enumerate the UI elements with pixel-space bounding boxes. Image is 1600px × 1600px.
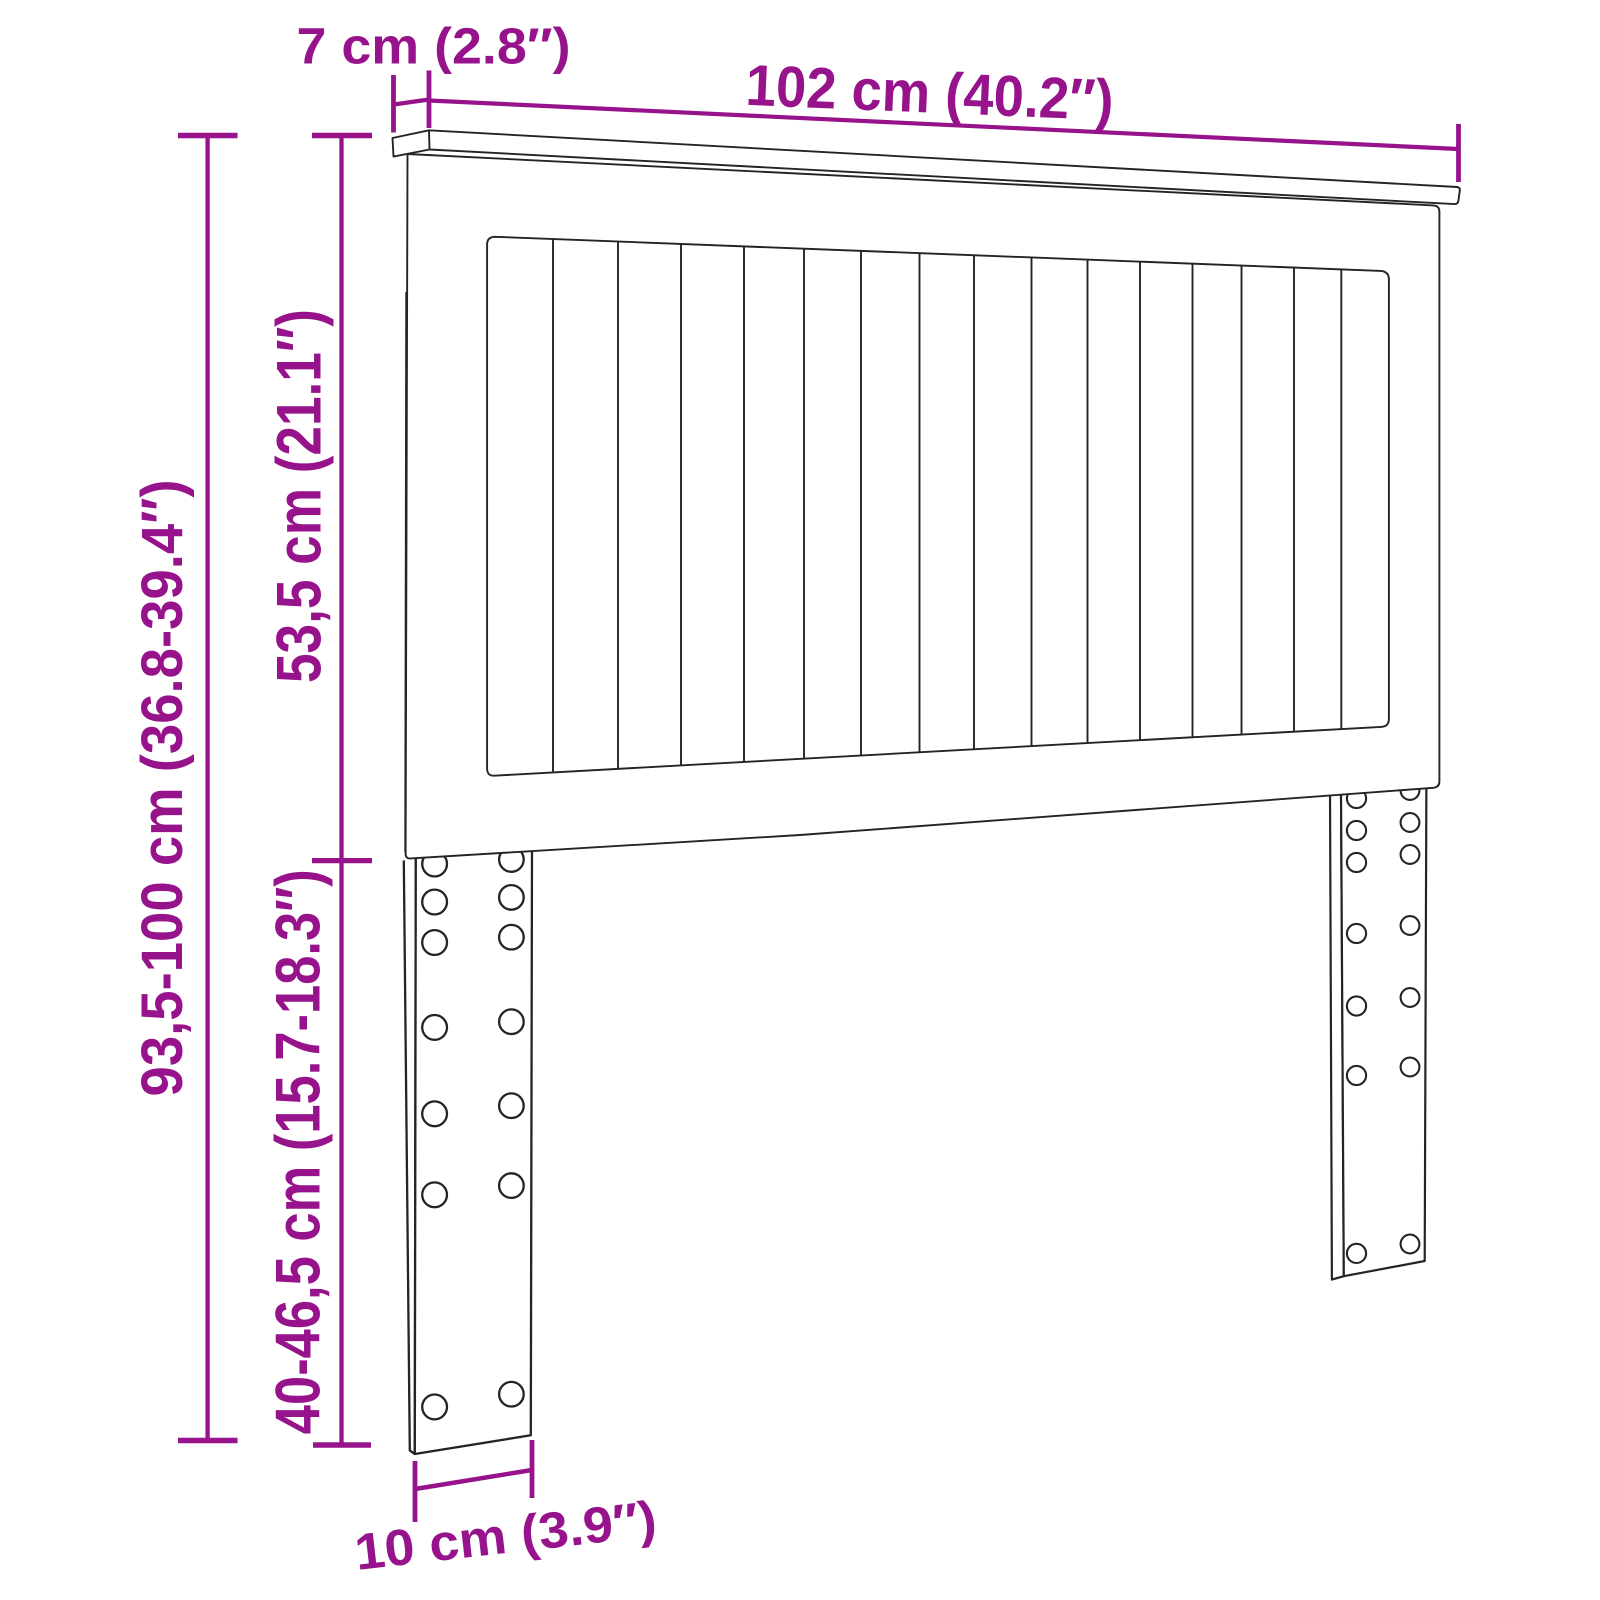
svg-text:53,5 cm (21.1″): 53,5 cm (21.1″) [265,309,335,683]
svg-text:7 cm (2.8″): 7 cm (2.8″) [297,18,571,75]
svg-text:93,5-100 cm (36.8-39.4″): 93,5-100 cm (36.8-39.4″) [130,480,195,1097]
svg-text:40-46,5 cm (15.7-18.3″): 40-46,5 cm (15.7-18.3″) [264,869,334,1434]
